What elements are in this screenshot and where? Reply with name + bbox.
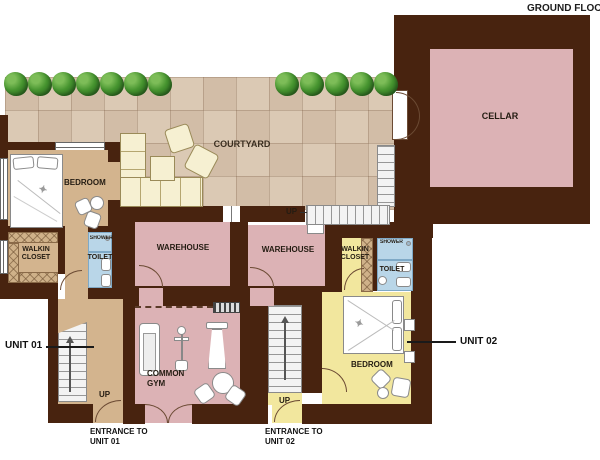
arrow-head xyxy=(281,316,289,323)
tree-icon xyxy=(148,72,172,96)
label-common-gym: COMMON GYM xyxy=(147,369,184,388)
tree-icon xyxy=(4,72,28,96)
wall xyxy=(115,206,223,222)
stairs-courtyard-horizontal xyxy=(306,205,390,225)
tree-icon xyxy=(28,72,52,96)
page-title: GROUND FLOOR P xyxy=(527,3,600,15)
window xyxy=(0,158,8,220)
wall xyxy=(302,293,322,393)
label-warehouse-2: WAREHOUSE xyxy=(261,245,315,255)
wall xyxy=(48,299,58,403)
tree-icon xyxy=(76,72,100,96)
door-gap xyxy=(250,288,274,306)
sink-icon xyxy=(101,274,111,287)
wall xyxy=(123,404,145,424)
stairs-arrow xyxy=(284,322,286,380)
walkin1-line2: CLOSET xyxy=(15,254,57,262)
wall xyxy=(0,115,8,145)
label-toilet-2: TOILET xyxy=(377,266,407,274)
shower-head-icon xyxy=(406,241,411,246)
label-up-courtyard: UP xyxy=(286,207,297,217)
label-walkin-closet-2: WALKIN CLOSET xyxy=(335,246,375,263)
gym-equipment-icon xyxy=(181,334,183,362)
wall xyxy=(230,222,248,292)
chair-icon xyxy=(390,377,411,399)
wall xyxy=(108,200,120,226)
label-unit01: UNIT 01 xyxy=(5,340,42,352)
entrance2-line1: ENTRANCE TO xyxy=(265,427,323,437)
closet-shelf xyxy=(8,232,58,243)
unit02-pointer-line xyxy=(407,341,456,343)
walkin1-line1: WALKIN xyxy=(15,246,57,254)
label-entrance-unit01: ENTRANCE TO UNIT 01 xyxy=(90,427,148,446)
door-leaf xyxy=(231,206,232,222)
up-pointer-line xyxy=(300,212,307,213)
tree-icon xyxy=(325,72,349,96)
wall xyxy=(192,404,245,424)
label-warehouse-1: WAREHOUSE xyxy=(156,243,210,253)
label-entrance-unit02: ENTRANCE TO UNIT 02 xyxy=(265,427,323,446)
floor-plan: ✦ ✦ GROUND FLOOR P COURTYARD CELLAR BEDR… xyxy=(0,0,600,460)
label-bedroom-2: BEDROOM xyxy=(351,360,393,370)
wall xyxy=(302,404,411,424)
tree-icon xyxy=(52,72,76,96)
wall xyxy=(48,403,93,423)
window xyxy=(0,240,8,274)
wall xyxy=(123,292,135,404)
bedroom1-opening xyxy=(108,162,120,200)
label-shower-2: SHOWER xyxy=(380,240,402,246)
treadmill-belt xyxy=(143,333,156,371)
stairs-unit01 xyxy=(58,322,87,402)
wall xyxy=(0,283,58,299)
side-table-icon xyxy=(377,387,389,399)
sink-icon xyxy=(396,277,411,287)
gym-line1: COMMON xyxy=(147,369,184,379)
tree-icon xyxy=(300,72,324,96)
label-shower-1: SHOWER xyxy=(90,236,110,242)
open-boundary-dashed xyxy=(135,306,213,308)
label-up-stairs2: UP xyxy=(279,396,290,406)
arrow-head xyxy=(66,336,74,343)
label-courtyard: COURTYARD xyxy=(212,139,272,150)
entrance2-line2: UNIT 02 xyxy=(265,437,323,447)
walkin2-line1: WALKIN xyxy=(335,246,375,254)
toilet-icon xyxy=(378,276,387,285)
coffee-table-icon xyxy=(150,156,175,181)
tree-icon xyxy=(100,72,124,96)
door-gap xyxy=(139,288,163,306)
nightstand-icon xyxy=(404,351,415,363)
radiator-grille-icon xyxy=(213,302,240,313)
entrance1-line2: UNIT 01 xyxy=(90,437,148,447)
label-up-stairs1: UP xyxy=(99,390,110,400)
entrance1-line1: ENTRANCE TO xyxy=(90,427,148,437)
tree-icon xyxy=(350,72,374,96)
label-toilet-1: TOILET xyxy=(86,254,114,262)
stairs-arrow xyxy=(69,342,71,392)
wall xyxy=(108,152,120,162)
nightstand-icon xyxy=(404,319,415,331)
sofa-icon xyxy=(120,177,203,207)
stairs-courtyard-vertical xyxy=(377,145,395,207)
walkin2-line2: CLOSET xyxy=(335,254,375,262)
gym-equipment-icon xyxy=(206,322,228,329)
closet-shelf xyxy=(19,272,58,283)
tree-icon xyxy=(275,72,299,96)
tree-icon xyxy=(124,72,148,96)
gym-line2: GYM xyxy=(147,379,184,389)
pillow-icon xyxy=(12,156,34,170)
label-bedroom-1: BEDROOM xyxy=(64,178,106,188)
label-cellar: CELLAR xyxy=(468,111,532,122)
tree-icon xyxy=(374,72,398,96)
label-unit02: UNIT 02 xyxy=(460,336,497,348)
pillow-icon xyxy=(37,156,59,170)
label-walkin-closet-1: WALKIN CLOSET xyxy=(15,246,57,263)
unit01-pointer-line xyxy=(46,346,94,348)
